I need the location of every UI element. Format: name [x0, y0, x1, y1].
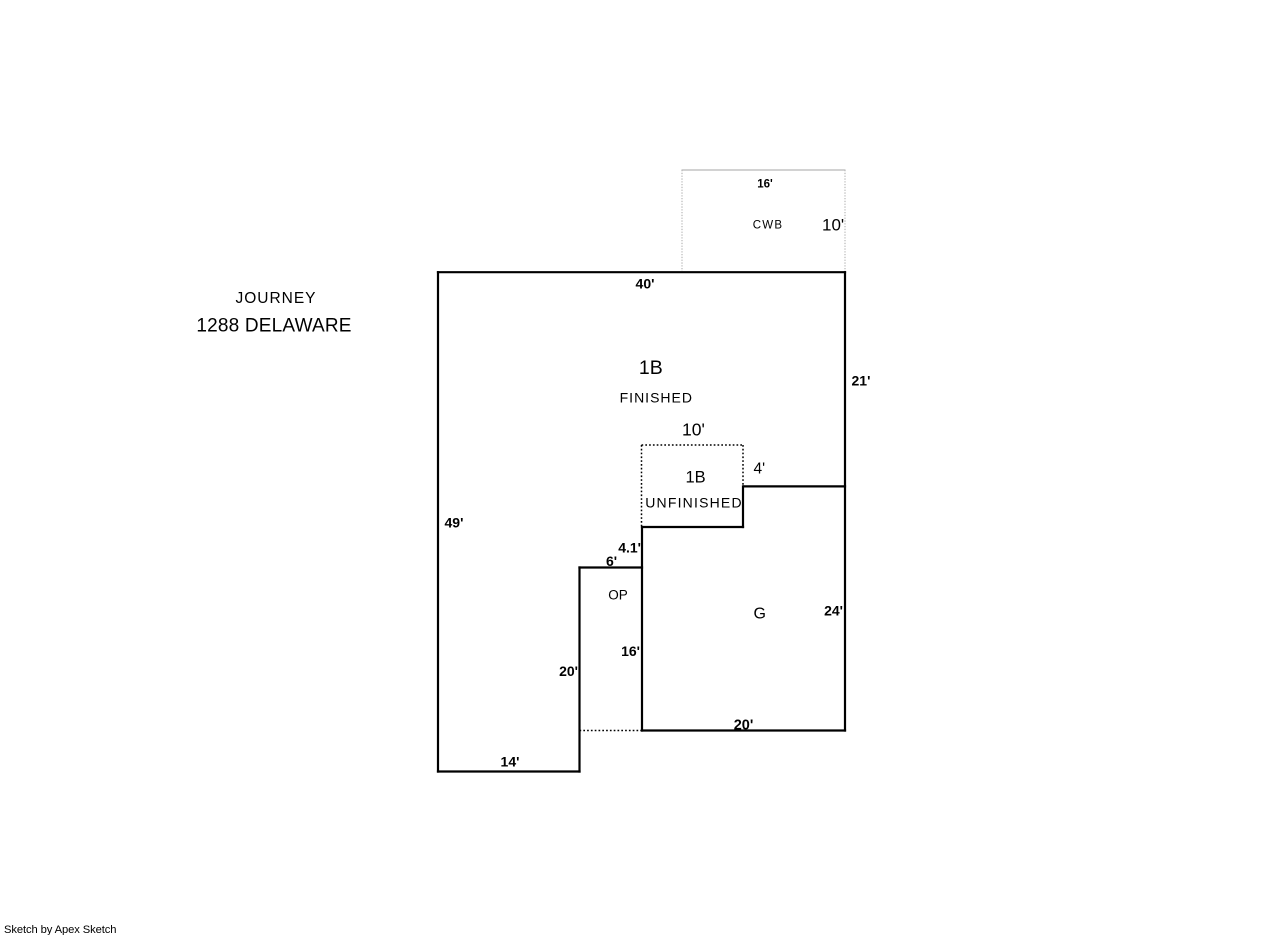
svg-text:Sketch by Apex Sketch: Sketch by Apex Sketch — [4, 924, 116, 935]
svg-text:24': 24' — [824, 603, 843, 619]
svg-text:G: G — [753, 606, 765, 623]
svg-text:40': 40' — [636, 276, 655, 292]
svg-text:1B: 1B — [639, 357, 663, 379]
svg-text:UNFINISHED: UNFINISHED — [645, 495, 743, 511]
svg-text:OP: OP — [608, 588, 628, 603]
svg-text:FINISHED: FINISHED — [620, 390, 693, 406]
svg-text:10': 10' — [682, 420, 705, 440]
svg-text:CWB: CWB — [753, 220, 783, 232]
svg-text:10': 10' — [822, 216, 844, 235]
svg-text:21': 21' — [852, 373, 871, 389]
svg-text:16': 16' — [757, 179, 773, 191]
svg-text:14': 14' — [501, 754, 520, 770]
svg-text:JOURNEY: JOURNEY — [235, 290, 316, 307]
svg-text:4.1': 4.1' — [618, 540, 641, 556]
svg-text:4': 4' — [754, 461, 766, 478]
svg-text:20': 20' — [559, 663, 578, 679]
svg-text:1B: 1B — [686, 469, 706, 487]
svg-text:49': 49' — [445, 515, 464, 531]
svg-text:16': 16' — [621, 643, 640, 659]
svg-text:1288 DELAWARE: 1288 DELAWARE — [196, 316, 351, 337]
svg-text:6': 6' — [606, 553, 617, 569]
svg-text:20': 20' — [734, 718, 754, 734]
